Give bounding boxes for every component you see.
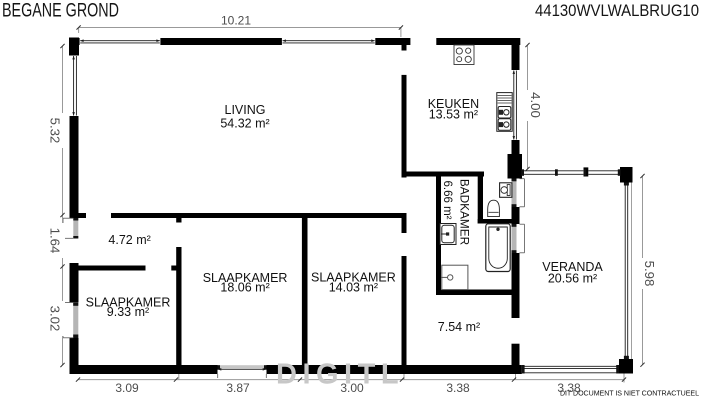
svg-text:6.66 m²: 6.66 m² [441, 181, 453, 220]
svg-text:4.00: 4.00 [528, 92, 543, 118]
svg-text:3.00: 3.00 [340, 381, 364, 395]
svg-text:4.72 m²: 4.72 m² [108, 233, 150, 247]
svg-text:13.53 m²: 13.53 m² [429, 108, 478, 122]
svg-text:BEGANE GROND: BEGANE GROND [2, 0, 119, 22]
svg-text:3.87: 3.87 [226, 381, 250, 395]
svg-text:1.64: 1.64 [48, 228, 63, 254]
svg-text:BADKAMER: BADKAMER [458, 179, 472, 245]
svg-text:14.03 m²: 14.03 m² [329, 280, 378, 294]
svg-text:18.06 m²: 18.06 m² [220, 280, 269, 294]
svg-text:3.02: 3.02 [48, 306, 63, 332]
svg-text:5.98: 5.98 [642, 261, 657, 287]
svg-text:10.21: 10.21 [221, 14, 251, 28]
svg-text:54.32 m²: 54.32 m² [220, 116, 269, 130]
svg-text:DIT DOCUMENT IS NIET CONTRACTU: DIT DOCUMENT IS NIET CONTRACTUEEL [560, 390, 699, 398]
svg-text:LIVING: LIVING [225, 103, 266, 117]
svg-text:44130WVLWALBRUG10: 44130WVLWALBRUG10 [535, 2, 699, 20]
svg-text:20.56 m²: 20.56 m² [548, 272, 597, 286]
svg-text:3.38: 3.38 [557, 381, 581, 395]
svg-text:3.09: 3.09 [115, 381, 139, 395]
svg-text:3.38: 3.38 [446, 381, 470, 395]
svg-text:9.33 m²: 9.33 m² [107, 305, 149, 319]
svg-text:7.54 m²: 7.54 m² [438, 320, 480, 334]
svg-text:5.32: 5.32 [48, 118, 63, 144]
